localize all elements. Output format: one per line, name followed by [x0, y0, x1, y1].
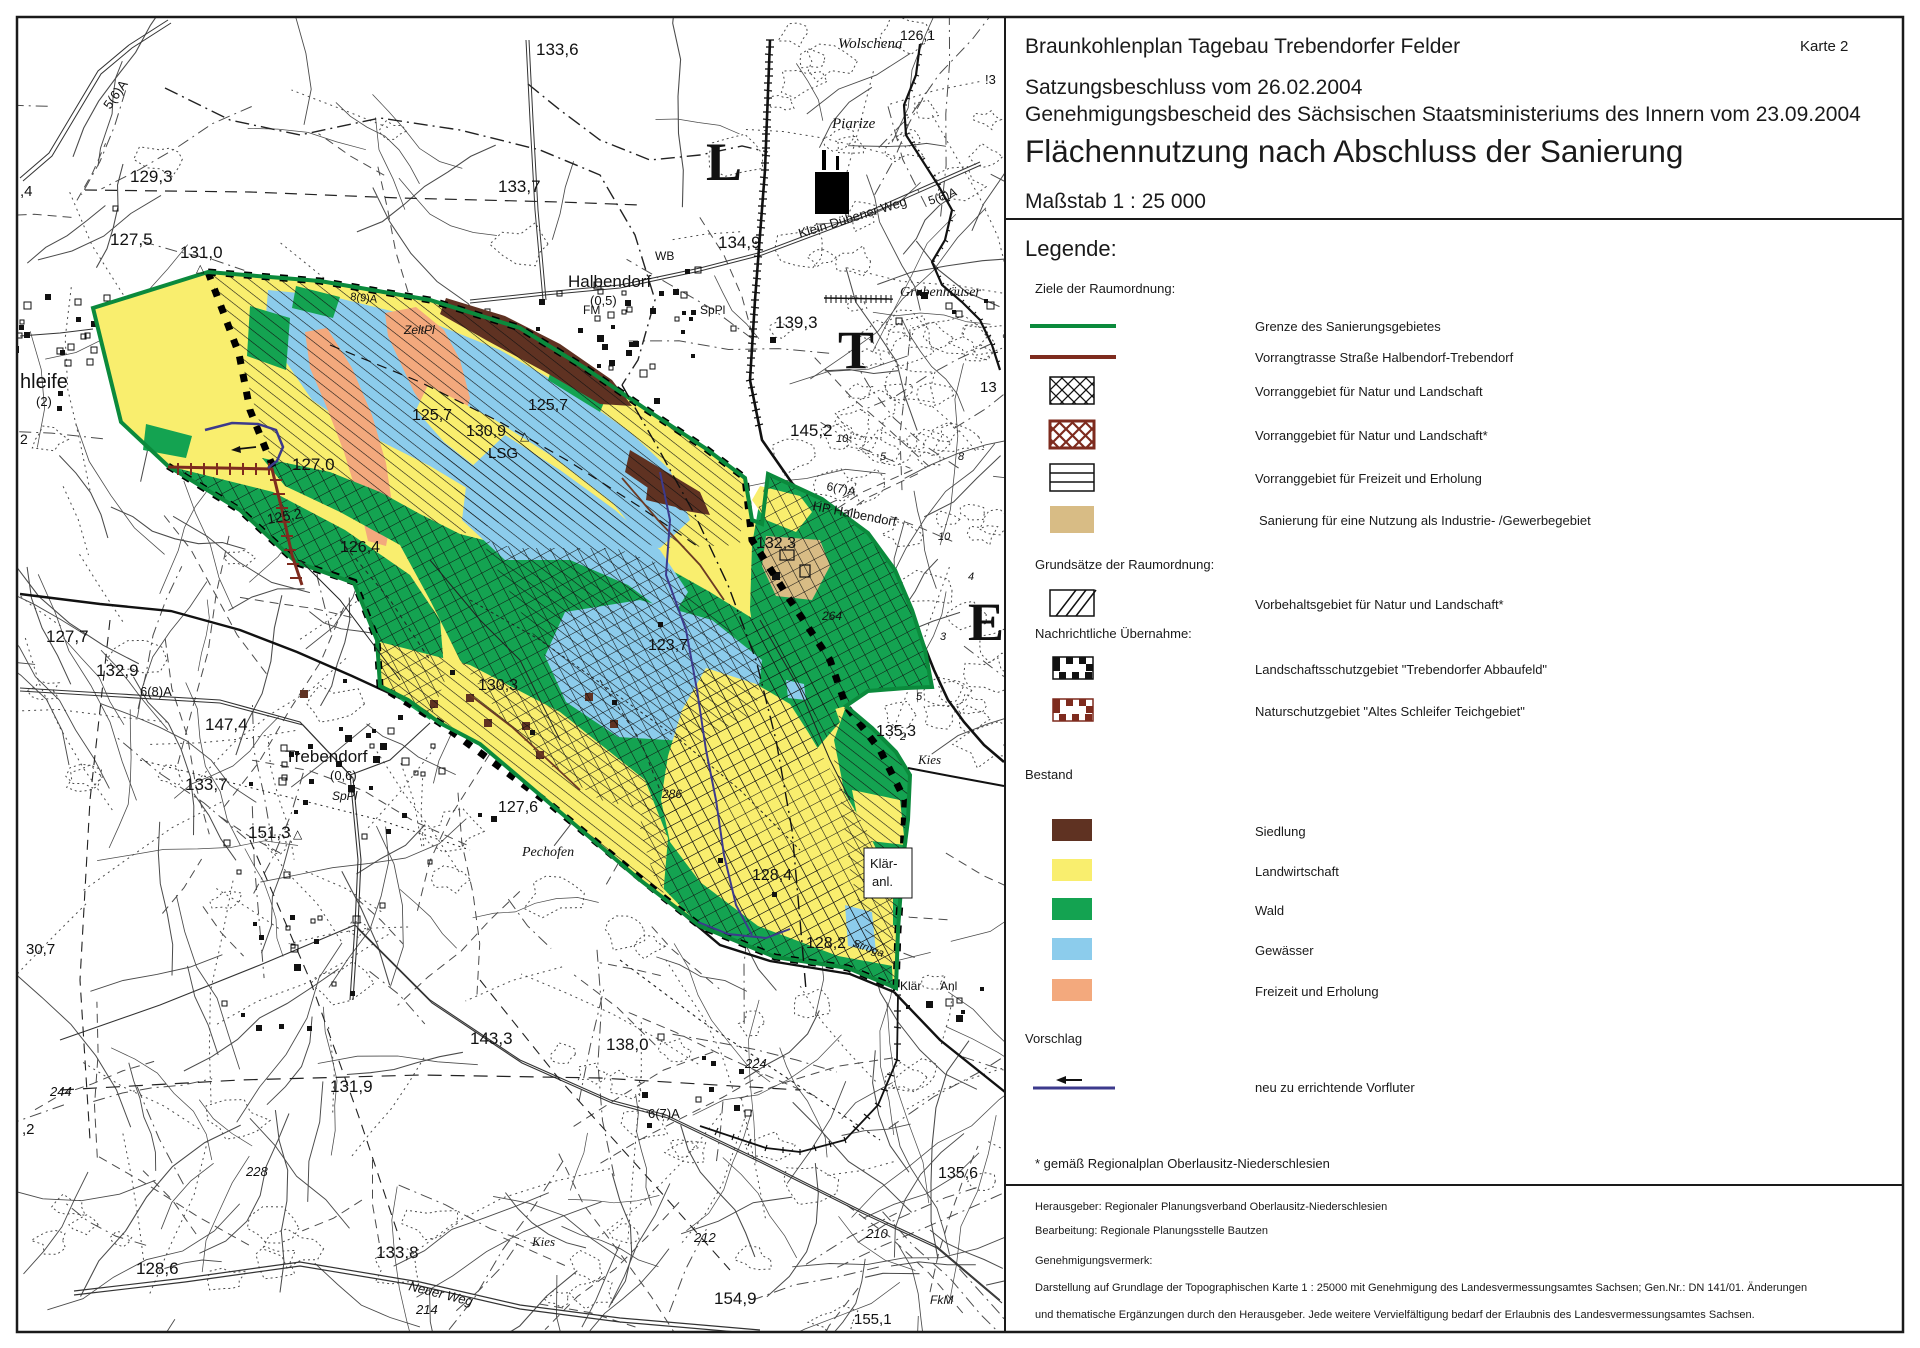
svg-text:133,7: 133,7 [498, 177, 541, 196]
svg-text:!3: !3 [985, 72, 996, 87]
svg-text:212: 212 [693, 1230, 716, 1245]
svg-text:E: E [968, 592, 1004, 652]
svg-text:132,3: 132,3 [756, 535, 796, 552]
svg-text:5: 5 [916, 691, 923, 703]
svg-text:SpPl: SpPl [332, 789, 358, 803]
svg-text:126,4: 126,4 [340, 539, 380, 556]
svg-text:125,7: 125,7 [528, 397, 568, 414]
svg-text:SpPl: SpPl [700, 303, 725, 317]
svg-text:131,9: 131,9 [330, 1077, 373, 1096]
svg-text:132,9: 132,9 [96, 661, 139, 680]
svg-text:anl.: anl. [872, 874, 893, 889]
svg-text:127,6: 127,6 [498, 799, 538, 816]
svg-text:Halbendorf: Halbendorf [568, 272, 651, 291]
svg-text:143,3: 143,3 [470, 1029, 513, 1048]
svg-text:,2: ,2 [22, 1121, 35, 1138]
svg-text:224: 224 [744, 1056, 767, 1071]
svg-text:L: L [706, 132, 742, 192]
svg-text:ZeltPl: ZeltPl [403, 323, 435, 337]
svg-text:210: 210 [865, 1226, 888, 1241]
svg-text:3: 3 [940, 631, 947, 643]
svg-text:5(6)A: 5(6)A [100, 77, 131, 112]
svg-text:123,7: 123,7 [648, 637, 688, 654]
svg-text:129,3: 129,3 [130, 167, 173, 186]
svg-text:139,3: 139,3 [775, 313, 818, 332]
svg-text:hleife: hleife [20, 371, 68, 393]
svg-text:30,7: 30,7 [26, 941, 55, 958]
svg-text:Pechofen: Pechofen [521, 845, 574, 860]
svg-text:133,6: 133,6 [536, 40, 579, 59]
svg-text:Grubenhäuser: Grubenhäuser [900, 285, 981, 300]
svg-text:6(7)A: 6(7)A [648, 1106, 680, 1121]
svg-text:8: 8 [958, 451, 965, 463]
svg-text:(0,6): (0,6) [330, 768, 357, 783]
svg-text:155,1: 155,1 [854, 1311, 892, 1328]
svg-text:147,4: 147,4 [205, 715, 248, 734]
svg-text:Anl: Anl [940, 979, 957, 993]
svg-text:5: 5 [880, 451, 887, 463]
svg-text:130,3: 130,3 [478, 677, 518, 694]
svg-text:5(6)A: 5(6)A [926, 185, 958, 208]
svg-text:131,0: 131,0 [180, 243, 223, 262]
svg-text:2: 2 [20, 431, 28, 447]
svg-text:Kies: Kies [531, 1234, 555, 1249]
svg-text:134,9: 134,9 [718, 233, 761, 252]
svg-text:6(7)A: 6(7)A [825, 479, 856, 498]
svg-text:154,9: 154,9 [714, 1289, 757, 1308]
svg-text:Klär: Klär [900, 979, 921, 993]
svg-text:(2): (2) [36, 394, 52, 409]
svg-text:△: △ [520, 429, 530, 443]
svg-text:FM: FM [583, 303, 600, 317]
svg-text:127,7: 127,7 [46, 627, 89, 646]
svg-text:286: 286 [661, 787, 682, 801]
svg-text:228: 228 [245, 1164, 268, 1179]
svg-text:138,0: 138,0 [606, 1035, 649, 1054]
svg-text:△: △ [196, 263, 205, 275]
svg-text:Piarize: Piarize [831, 116, 876, 132]
svg-text:127,5: 127,5 [110, 230, 153, 249]
svg-text:128,4: 128,4 [752, 867, 792, 884]
svg-text:151,3: 151,3 [248, 823, 291, 842]
svg-text:2: 2 [899, 731, 906, 743]
svg-text:145,2: 145,2 [790, 421, 833, 440]
svg-text:FkM: FkM [930, 1293, 953, 1307]
svg-text:Wolschena: Wolschena [838, 36, 902, 52]
svg-text:126,1: 126,1 [900, 27, 935, 43]
svg-text:125,7: 125,7 [412, 407, 452, 424]
svg-text:13: 13 [980, 379, 997, 396]
svg-text:264: 264 [821, 609, 842, 623]
svg-text:135,3: 135,3 [876, 723, 916, 740]
svg-text:128,6: 128,6 [136, 1259, 179, 1278]
svg-text:4: 4 [968, 571, 974, 583]
svg-text:Klär-: Klär- [870, 856, 897, 871]
svg-text:244: 244 [49, 1084, 72, 1099]
svg-text:127,0: 127,0 [292, 455, 335, 474]
svg-text:128,2: 128,2 [806, 935, 846, 952]
svg-text:135,6: 135,6 [938, 1165, 978, 1182]
svg-text:,4: ,4 [20, 183, 33, 200]
svg-text:WB: WB [655, 249, 674, 263]
svg-text:6(8)A: 6(8)A [140, 684, 172, 699]
svg-text:10: 10 [938, 531, 951, 543]
svg-text:10: 10 [836, 433, 849, 445]
svg-text:214: 214 [415, 1302, 438, 1317]
svg-text:Klein Dübener Weg: Klein Dübener Weg [796, 194, 908, 241]
svg-text:LSG: LSG [488, 445, 518, 462]
svg-text:Kies: Kies [917, 752, 941, 767]
svg-text:130,9: 130,9 [466, 423, 506, 440]
svg-text:△: △ [293, 827, 303, 841]
svg-text:133,8: 133,8 [376, 1243, 419, 1262]
svg-text:Trebendorf: Trebendorf [285, 747, 368, 766]
svg-text:T: T [838, 320, 874, 380]
svg-text:133,7: 133,7 [185, 775, 228, 794]
